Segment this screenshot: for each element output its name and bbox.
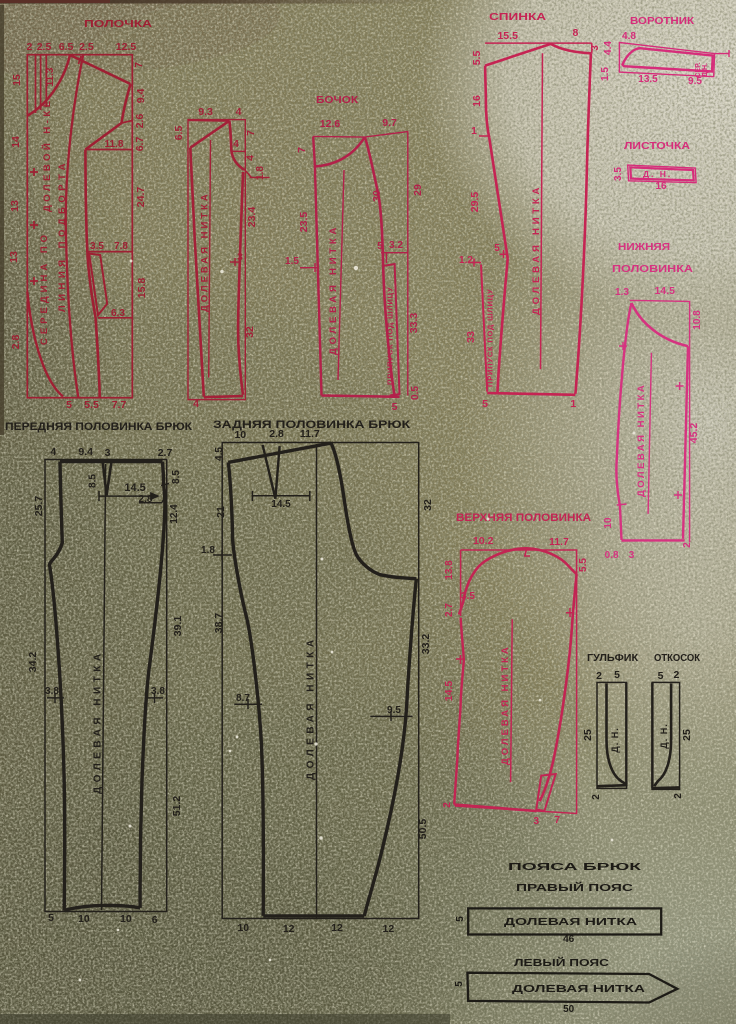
- svg-text:6.3: 6.3: [111, 308, 125, 319]
- svg-text:2.8: 2.8: [139, 494, 153, 505]
- svg-text:1: 1: [471, 126, 477, 137]
- svg-text:2: 2: [26, 41, 32, 53]
- svg-text:ЛИСТОЧКА: ЛИСТОЧКА: [624, 140, 690, 152]
- svg-text:9.5: 9.5: [387, 705, 401, 716]
- svg-text:1.5: 1.5: [285, 256, 299, 267]
- svg-text:3.8: 3.8: [45, 686, 59, 697]
- svg-text:39.1: 39.1: [172, 616, 184, 637]
- svg-text:16: 16: [471, 95, 483, 107]
- svg-text:33.3: 33.3: [408, 313, 420, 334]
- svg-text:5: 5: [494, 243, 500, 254]
- svg-text:10: 10: [78, 913, 90, 925]
- svg-text:ПОЛОЧКА: ПОЛОЧКА: [84, 18, 153, 30]
- svg-text:1.8: 1.8: [255, 166, 266, 180]
- svg-text:ДОЛЕВАЯ НИТКА: ДОЛЕВАЯ НИТКА: [531, 184, 542, 315]
- svg-text:14.5: 14.5: [124, 482, 145, 494]
- svg-text:3.2: 3.2: [389, 240, 403, 251]
- svg-text:0.5: 0.5: [410, 386, 421, 400]
- svg-text:10: 10: [237, 922, 249, 934]
- svg-text:4: 4: [50, 446, 56, 458]
- svg-text:6.7: 6.7: [134, 137, 146, 152]
- svg-text:БОЧОК: БОЧОК: [316, 94, 359, 106]
- svg-text:25.7: 25.7: [33, 496, 45, 517]
- svg-text:9.3: 9.3: [198, 106, 213, 118]
- svg-text:СПИНКА: СПИНКА: [489, 11, 547, 23]
- svg-text:4.4: 4.4: [603, 41, 614, 55]
- svg-text:ДОЛЕВАЯ НИТКА: ДОЛЕВАЯ НИТКА: [200, 191, 211, 312]
- svg-text:2.7: 2.7: [158, 447, 173, 459]
- svg-text:3: 3: [105, 447, 111, 459]
- svg-text:12.5: 12.5: [116, 41, 137, 53]
- svg-text:24.7: 24.7: [135, 187, 147, 208]
- svg-text:ПРИПУСК ПОД ШЛИЦУ: ПРИПУСК ПОД ШЛИЦУ: [386, 287, 395, 385]
- svg-text:Д. Н.: Д. Н.: [610, 727, 620, 752]
- svg-text:9.4: 9.4: [78, 446, 93, 458]
- svg-text:ВЕРХНЯЯ ПОЛОВИНКА: ВЕРХНЯЯ ПОЛОВИНКА: [456, 512, 591, 524]
- svg-text:2.7: 2.7: [444, 603, 455, 617]
- svg-text:38.7: 38.7: [213, 613, 225, 634]
- svg-text:7: 7: [555, 815, 561, 826]
- svg-text:1.2: 1.2: [459, 255, 473, 266]
- svg-text:50.5: 50.5: [417, 819, 429, 840]
- svg-text:3: 3: [629, 550, 635, 561]
- svg-text:25: 25: [582, 729, 594, 741]
- svg-text:11.7: 11.7: [549, 536, 569, 548]
- svg-text:7: 7: [133, 62, 145, 68]
- svg-text:8: 8: [572, 27, 578, 39]
- svg-text:5: 5: [658, 670, 664, 682]
- svg-text:1: 1: [570, 398, 576, 410]
- svg-text:ОТКОСОК: ОТКОСОК: [654, 652, 701, 664]
- svg-text:13: 13: [9, 200, 21, 212]
- svg-text:ПРАВЫЙ ПОЯС: ПРАВЫЙ ПОЯС: [516, 881, 634, 894]
- svg-text:3: 3: [237, 252, 243, 263]
- svg-text:2: 2: [591, 794, 602, 800]
- svg-text:29: 29: [412, 184, 424, 196]
- svg-text:8.5: 8.5: [88, 474, 99, 488]
- svg-text:3.5: 3.5: [613, 167, 624, 181]
- svg-text:5: 5: [454, 981, 465, 987]
- svg-text:1.5: 1.5: [600, 67, 611, 81]
- svg-text:ДОЛЕВАЯ НИТКА: ДОЛЕВАЯ НИТКА: [500, 644, 511, 765]
- svg-text:2.6: 2.6: [134, 114, 146, 129]
- svg-text:ПОЛОВИНКА: ПОЛОВИНКА: [612, 263, 693, 275]
- svg-text:2: 2: [596, 670, 602, 682]
- svg-text:8.7: 8.7: [236, 693, 250, 704]
- svg-text:15.8: 15.8: [136, 278, 148, 299]
- svg-text:13: 13: [8, 251, 20, 263]
- svg-text:7.7: 7.7: [112, 399, 127, 411]
- svg-text:ВОРОТНИК: ВОРОТНИК: [630, 15, 695, 27]
- svg-text:7: 7: [245, 130, 257, 136]
- svg-text:5: 5: [614, 669, 620, 681]
- svg-text:6.5: 6.5: [59, 41, 74, 53]
- svg-text:5: 5: [392, 401, 398, 413]
- svg-text:15.5: 15.5: [497, 30, 518, 42]
- svg-text:9.7: 9.7: [382, 117, 397, 129]
- svg-text:11.7: 11.7: [300, 428, 320, 440]
- svg-text:ДОЛЕВАЯ НИТКА: ДОЛЕВАЯ НИТКА: [636, 383, 647, 497]
- svg-text:4: 4: [236, 106, 242, 118]
- svg-text:12: 12: [383, 923, 395, 935]
- svg-text:5: 5: [482, 398, 488, 410]
- svg-text:2.5: 2.5: [79, 41, 94, 53]
- svg-text:7.8: 7.8: [114, 241, 128, 252]
- svg-text:4: 4: [233, 139, 239, 150]
- svg-text:ПОЯСА БРЮК: ПОЯСА БРЮК: [508, 861, 642, 873]
- svg-text:5.5: 5.5: [471, 51, 483, 66]
- svg-text:16: 16: [655, 181, 667, 192]
- svg-text:50: 50: [563, 1004, 575, 1015]
- svg-text:Д.Н.: Д.Н.: [702, 63, 709, 77]
- svg-text:СЕРЕДИНА ПО: СЕРЕДИНА ПО: [39, 231, 50, 345]
- svg-text:СЕР.: СЕР.: [695, 62, 702, 77]
- svg-text:32: 32: [422, 499, 434, 511]
- svg-text:30: 30: [371, 190, 383, 202]
- svg-text:45.2: 45.2: [688, 423, 700, 444]
- svg-text:ДОЛЕВОЙ Н-КЕ: ДОЛЕВОЙ Н-КЕ: [41, 97, 53, 212]
- svg-text:ДОЛЕВАЯ НИТКА: ДОЛЕВАЯ НИТКА: [504, 916, 638, 928]
- svg-text:3: 3: [590, 45, 601, 51]
- svg-text:12.4: 12.4: [169, 504, 180, 524]
- svg-text:ДОЛЕВАЯ НИТКА: ДОЛЕВАЯ НИТКА: [93, 649, 104, 794]
- svg-text:23.4: 23.4: [246, 207, 258, 228]
- svg-text:14.5: 14.5: [271, 499, 291, 510]
- svg-text:33.2: 33.2: [420, 634, 432, 655]
- svg-text:12: 12: [283, 923, 295, 935]
- svg-text:ЛЕВЫЙ ПОЯС: ЛЕВЫЙ ПОЯС: [514, 956, 610, 969]
- svg-text:3.5: 3.5: [461, 591, 475, 602]
- svg-text:12: 12: [331, 922, 343, 934]
- svg-text:14.5: 14.5: [443, 681, 455, 702]
- svg-text:23.5: 23.5: [298, 212, 310, 233]
- svg-text:6.5: 6.5: [173, 126, 185, 141]
- svg-text:3: 3: [534, 816, 540, 827]
- svg-text:Д. Н.: Д. Н.: [659, 723, 669, 748]
- svg-text:10: 10: [234, 429, 246, 441]
- svg-text:21: 21: [215, 506, 227, 518]
- svg-text:32: 32: [244, 326, 256, 338]
- svg-text:5: 5: [455, 916, 466, 922]
- svg-text:ПЕРЕДНЯЯ ПОЛОВИНКА БРЮК: ПЕРЕДНЯЯ ПОЛОВИНКА БРЮК: [5, 421, 192, 433]
- svg-text:34.2: 34.2: [27, 652, 39, 673]
- svg-text:ДОЛЕВАЯ НИТКА: ДОЛЕВАЯ НИТКА: [306, 635, 317, 780]
- svg-text:11.8: 11.8: [105, 139, 124, 150]
- svg-text:12.6: 12.6: [320, 118, 341, 130]
- svg-text:4.8: 4.8: [622, 31, 636, 42]
- svg-text:5: 5: [66, 399, 72, 411]
- svg-text:10.2: 10.2: [473, 535, 494, 547]
- svg-text:ДОЛЕВАЯ НИТКА: ДОЛЕВАЯ НИТКА: [328, 224, 339, 355]
- svg-text:2.8: 2.8: [269, 428, 284, 440]
- svg-text:13.8: 13.8: [444, 560, 455, 580]
- svg-text:2.5: 2.5: [37, 41, 52, 53]
- svg-text:10: 10: [603, 517, 614, 529]
- svg-text:13.5: 13.5: [638, 74, 658, 85]
- svg-text:29.5: 29.5: [469, 192, 481, 213]
- svg-text:14.5: 14.5: [654, 285, 675, 297]
- svg-text:3.8: 3.8: [151, 686, 165, 697]
- svg-text:5: 5: [377, 241, 383, 252]
- svg-text:46: 46: [563, 934, 575, 945]
- svg-text:15: 15: [11, 74, 23, 86]
- svg-text:5.5: 5.5: [84, 399, 99, 411]
- svg-text:10: 10: [120, 913, 132, 925]
- svg-text:1.8: 1.8: [201, 545, 215, 556]
- svg-text:33: 33: [465, 331, 477, 343]
- svg-text:25: 25: [681, 729, 693, 741]
- svg-text:6: 6: [152, 914, 158, 926]
- svg-text:51.2: 51.2: [171, 796, 183, 817]
- svg-text:2: 2: [673, 669, 679, 681]
- svg-text:5.5: 5.5: [578, 558, 589, 572]
- svg-text:ДОЛЕВАЯ НИТКА: ДОЛЕВАЯ НИТКА: [512, 983, 646, 995]
- svg-text:ПРИПУСК ПОД ШЛИЦУ: ПРИПУСК ПОД ШЛИЦУ: [486, 289, 495, 387]
- svg-text:ЛИНИЯ ПОДБОРТА: ЛИНИЯ ПОДБОРТА: [57, 159, 68, 312]
- svg-text:7: 7: [296, 147, 308, 153]
- svg-text:1.3: 1.3: [615, 287, 629, 298]
- svg-text:10.8: 10.8: [692, 310, 703, 330]
- svg-text:3.5: 3.5: [90, 241, 104, 252]
- svg-text:4: 4: [246, 155, 257, 161]
- svg-text:2: 2: [682, 542, 693, 548]
- svg-text:ГУЛЬФИК: ГУЛЬФИК: [587, 652, 639, 664]
- svg-text:11.3: 11.3: [45, 67, 56, 86]
- svg-text:Д. Н.: Д. Н.: [643, 169, 672, 179]
- svg-text:2: 2: [673, 793, 684, 799]
- svg-text:4.5: 4.5: [214, 447, 225, 461]
- svg-text:2: 2: [442, 802, 453, 808]
- svg-text:8.5: 8.5: [171, 470, 182, 484]
- svg-text:2.8: 2.8: [10, 335, 22, 350]
- svg-text:НИЖНЯЯ: НИЖНЯЯ: [618, 241, 670, 253]
- svg-text:4: 4: [193, 398, 199, 410]
- svg-text:9.4: 9.4: [135, 89, 147, 104]
- svg-text:5: 5: [48, 912, 54, 924]
- svg-text:14: 14: [10, 136, 22, 148]
- svg-text:0.8: 0.8: [605, 550, 619, 561]
